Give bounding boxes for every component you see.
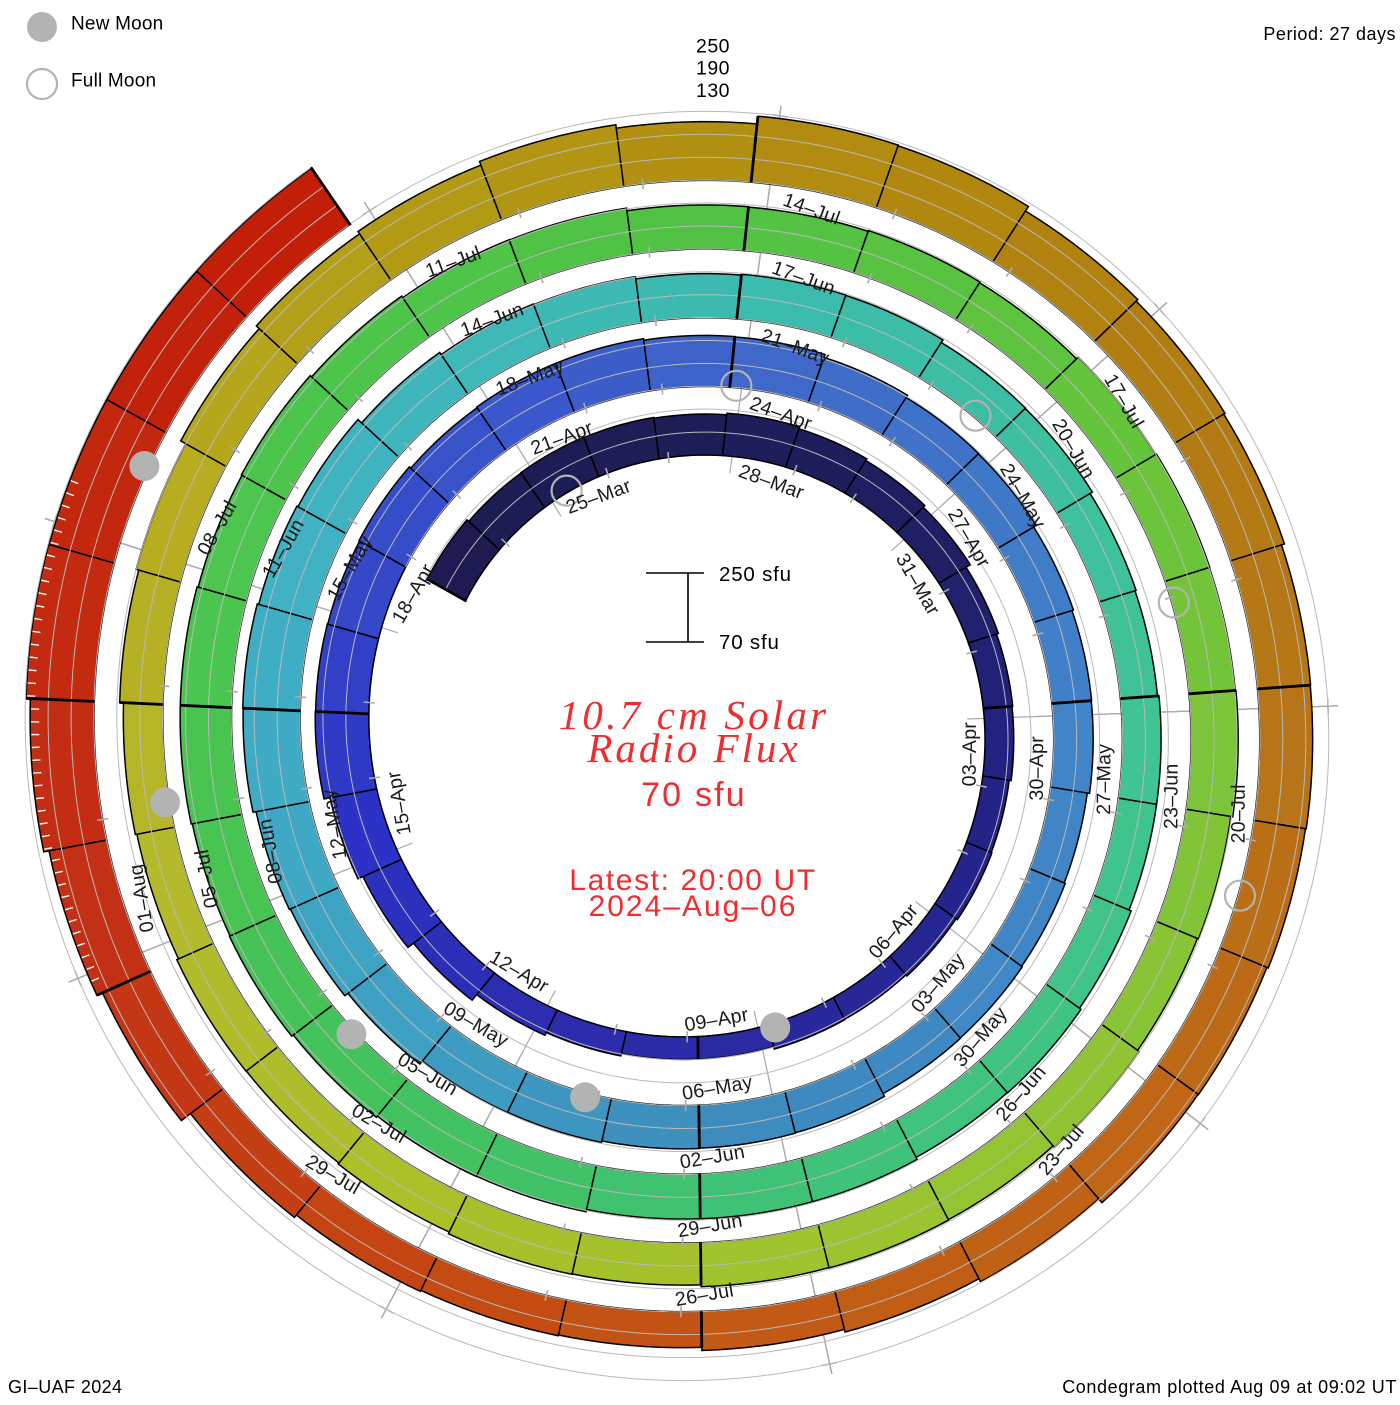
- svg-text:20–Jul: 20–Jul: [1228, 784, 1250, 843]
- svg-text:Full Moon: Full Moon: [71, 71, 156, 92]
- svg-text:130: 130: [696, 80, 730, 102]
- svg-text:27–May: 27–May: [1093, 744, 1115, 815]
- svg-text:70 sfu: 70 sfu: [641, 776, 747, 814]
- svg-text:70 sfu: 70 sfu: [719, 631, 780, 654]
- svg-text:03–Apr: 03–Apr: [959, 722, 981, 787]
- svg-text:23–Jun: 23–Jun: [1160, 763, 1182, 829]
- svg-text:250 sfu: 250 sfu: [719, 563, 792, 586]
- svg-text:190: 190: [696, 58, 730, 80]
- svg-text:Condegram plotted Aug 09 at 09: Condegram plotted Aug 09 at 09:02 UT: [1062, 1377, 1397, 1397]
- svg-text:250: 250: [696, 36, 730, 58]
- svg-text:Radio Flux: Radio Flux: [586, 725, 800, 771]
- svg-text:New Moon: New Moon: [71, 14, 163, 35]
- svg-text:30–Apr: 30–Apr: [1026, 736, 1048, 801]
- svg-text:GI–UAF 2024: GI–UAF 2024: [8, 1377, 122, 1397]
- svg-text:Period: 27 days: Period: 27 days: [1263, 24, 1396, 44]
- svg-text:2024–Aug–06: 2024–Aug–06: [589, 890, 798, 923]
